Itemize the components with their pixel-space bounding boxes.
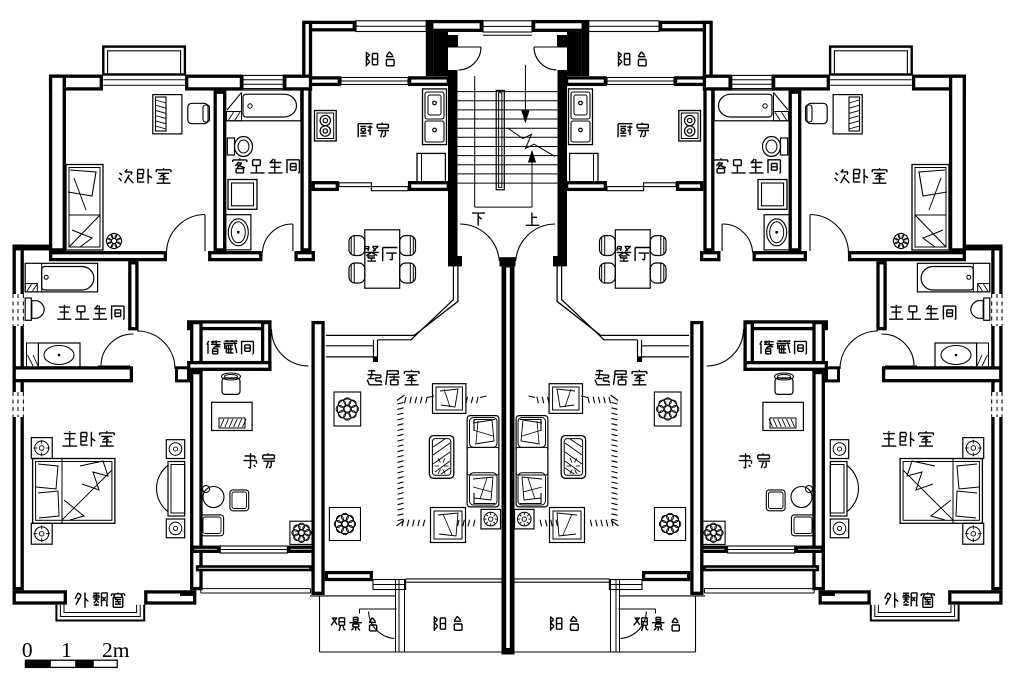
svg-text:2m: 2m — [102, 638, 130, 662]
svg-text:0: 0 — [22, 638, 33, 662]
svg-text:1: 1 — [61, 638, 72, 662]
